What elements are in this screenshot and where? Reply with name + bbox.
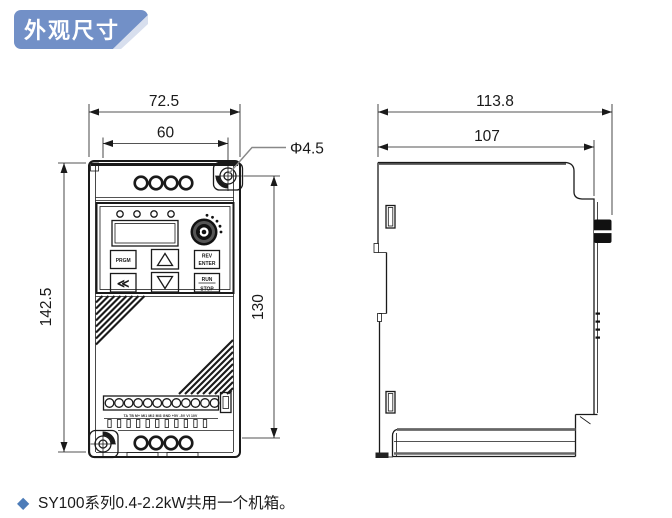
dim-mounting-width: 60 — [157, 125, 175, 142]
side-outline-top-right — [378, 163, 594, 415]
hole-leader-line — [229, 148, 286, 174]
btn-stop-label: STOP — [200, 287, 214, 293]
din-slot-lower — [386, 392, 395, 414]
keypad-panel: PRGM REV ENTER ≪ RUN — [97, 203, 234, 293]
btn-prgm-label: PRGM — [116, 258, 131, 264]
btn-down — [152, 273, 179, 293]
btn-rev-label: REV — [202, 254, 213, 260]
dim-overall-height: 142.5 — [38, 288, 55, 327]
led-indicators — [117, 211, 174, 217]
hatch-bottom-right — [179, 340, 233, 394]
front-dimensions: 72.5 60 Φ4.5 142.5 130 — [38, 93, 324, 452]
side-rear-profile — [374, 163, 393, 459]
side-dimensions: 113.8 107 — [378, 93, 612, 215]
dim-overall-width: 72.5 — [149, 93, 179, 110]
footnote-text: SY100系列0.4-2.2kW共用一个机箱。 — [38, 494, 295, 512]
front-view: PRGM REV ENTER ≪ RUN — [38, 93, 324, 458]
dim-body-depth: 107 — [474, 128, 500, 145]
drawing-page: 外观尺寸 — [0, 0, 672, 518]
side-view: 113.8 107 — [374, 93, 612, 458]
dimension-drawing: 外观尺寸 — [0, 0, 672, 518]
footnote-bullet-icon: ◆ — [17, 495, 30, 512]
side-bottom-foot — [376, 453, 389, 459]
btn-run-label: RUN — [202, 277, 213, 283]
side-knob — [594, 220, 612, 244]
btn-rev-enter: REV ENTER — [195, 251, 220, 269]
dim-hole-diameter: Φ4.5 — [290, 141, 324, 158]
terminal-labels: TA TB M+ MI1 MI2 MI3 GND +5V -5V VI 10V — [124, 414, 198, 418]
din-slot-upper — [386, 206, 395, 229]
front-body-outline — [89, 161, 240, 457]
wire-entry-slots — [104, 419, 218, 428]
side-bottom-cover — [393, 415, 598, 457]
page-title: 外观尺寸 — [24, 18, 120, 43]
btn-up — [152, 250, 179, 270]
dim-mounting-height: 130 — [250, 294, 267, 320]
btn-prgm: PRGM — [111, 251, 137, 269]
top-vent-holes — [135, 177, 193, 190]
dim-overall-depth: 113.8 — [476, 93, 514, 110]
lcd-display — [112, 221, 178, 247]
title-badge: 外观尺寸 — [14, 10, 148, 49]
potentiometer-knob — [191, 214, 223, 246]
footnote: ◆ SY100系列0.4-2.2kW共用一个机箱。 — [17, 494, 295, 512]
btn-back-label: ≪ — [117, 277, 130, 291]
terminal-holes — [105, 399, 219, 408]
terminal-strip: TA TB M+ MI1 MI2 MI3 GND +5V -5V VI 10V — [104, 396, 219, 418]
mounting-hole-bottom-left — [90, 431, 119, 458]
hatch-top-left — [96, 296, 145, 345]
bottom-vent-holes — [135, 437, 193, 450]
btn-enter-label: ENTER — [199, 261, 216, 267]
